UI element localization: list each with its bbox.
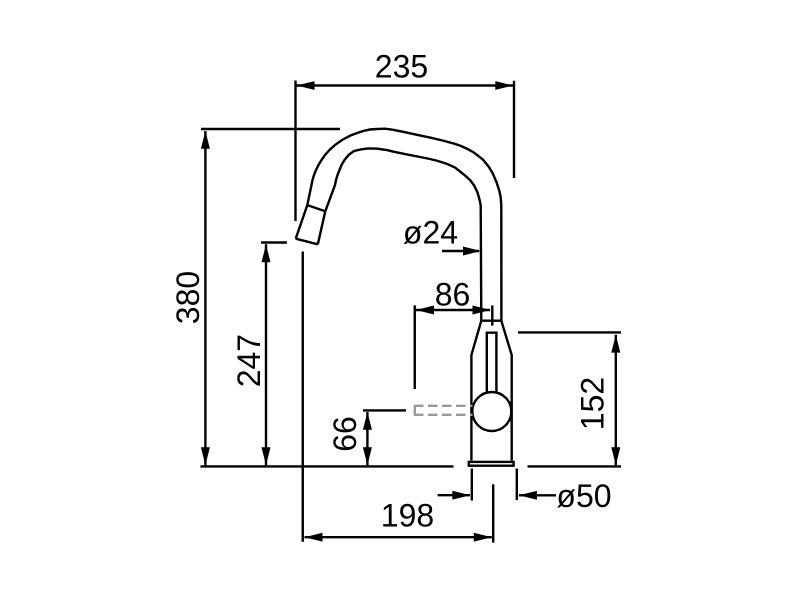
svg-text:ø50: ø50: [556, 478, 611, 514]
svg-text:66: 66: [327, 416, 363, 452]
svg-text:235: 235: [375, 48, 428, 84]
svg-text:152: 152: [575, 377, 611, 430]
svg-text:247: 247: [231, 334, 267, 387]
svg-text:198: 198: [381, 498, 434, 534]
svg-text:ø24: ø24: [403, 215, 458, 251]
svg-text:380: 380: [170, 271, 206, 324]
svg-text:86: 86: [435, 276, 471, 312]
